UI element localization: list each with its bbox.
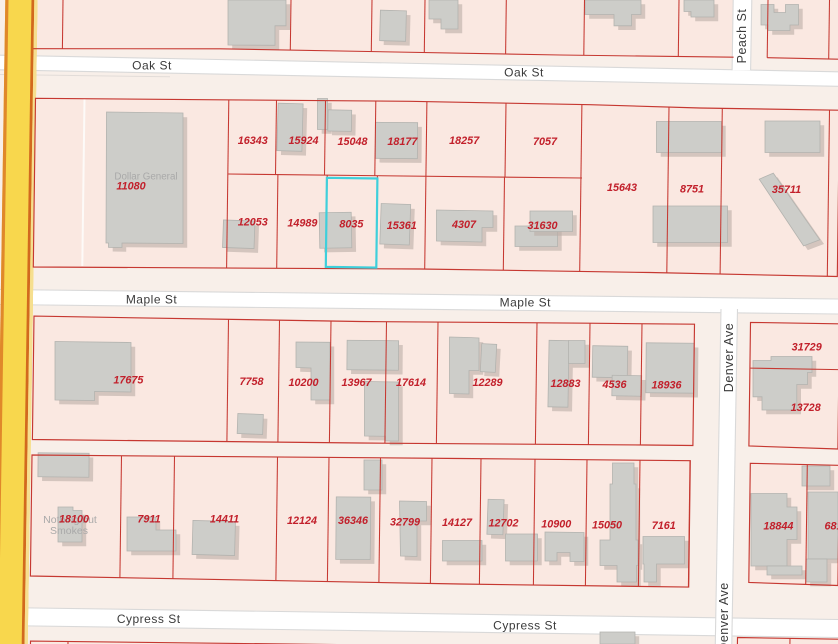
svg-text:12702: 12702	[488, 517, 518, 529]
svg-text:18257: 18257	[449, 135, 480, 147]
svg-text:15361: 15361	[387, 220, 417, 232]
svg-text:36346: 36346	[338, 515, 369, 527]
svg-text:4307: 4307	[451, 219, 477, 231]
svg-text:Maple St: Maple St	[126, 293, 178, 307]
svg-text:15050: 15050	[592, 519, 622, 531]
svg-text:Maple St: Maple St	[500, 296, 552, 310]
svg-text:15924: 15924	[288, 135, 318, 147]
svg-text:12289: 12289	[472, 377, 502, 389]
svg-text:Dollar General: Dollar General	[114, 172, 177, 183]
svg-text:Oak St: Oak St	[504, 65, 544, 79]
svg-text:17675: 17675	[113, 375, 144, 387]
svg-text:16343: 16343	[238, 135, 268, 147]
svg-text:31729: 31729	[792, 342, 822, 354]
svg-text:14411: 14411	[210, 513, 239, 525]
svg-text:14127: 14127	[442, 517, 473, 529]
svg-text:35711: 35711	[772, 184, 801, 196]
svg-text:32799: 32799	[390, 516, 420, 528]
svg-text:10900: 10900	[541, 518, 571, 530]
svg-text:Smokes: Smokes	[50, 525, 88, 537]
svg-text:Cypress St: Cypress St	[493, 619, 557, 633]
svg-text:7911: 7911	[137, 513, 160, 525]
svg-text:18100: 18100	[59, 513, 89, 525]
svg-text:17614: 17614	[396, 377, 426, 389]
svg-text:7758: 7758	[239, 376, 263, 388]
svg-text:Peach St: Peach St	[735, 9, 749, 64]
svg-text:7161: 7161	[652, 520, 676, 532]
svg-text:8035: 8035	[339, 219, 364, 231]
svg-text:15048: 15048	[337, 136, 367, 148]
svg-text:15643: 15643	[607, 182, 637, 194]
svg-text:14989: 14989	[287, 217, 317, 229]
svg-text:Oak St: Oak St	[132, 59, 172, 73]
svg-text:8751: 8751	[680, 183, 704, 195]
svg-text:12124: 12124	[287, 515, 317, 527]
svg-text:Denver Ave: Denver Ave	[722, 323, 736, 392]
svg-text:6813: 6813	[824, 521, 838, 533]
svg-text:13728: 13728	[791, 402, 821, 414]
svg-text:12053: 12053	[238, 217, 268, 229]
svg-text:31630: 31630	[527, 220, 557, 232]
svg-text:10200: 10200	[288, 377, 318, 389]
svg-text:Cypress St: Cypress St	[117, 612, 181, 626]
svg-text:7057: 7057	[533, 136, 558, 148]
svg-text:13967: 13967	[341, 377, 372, 389]
svg-text:18844: 18844	[763, 521, 793, 533]
svg-text:18177: 18177	[387, 136, 418, 148]
svg-text:18936: 18936	[651, 379, 682, 391]
svg-text:Denver Ave: Denver Ave	[717, 582, 731, 644]
svg-text:12883: 12883	[550, 378, 580, 390]
svg-text:4536: 4536	[601, 379, 627, 391]
